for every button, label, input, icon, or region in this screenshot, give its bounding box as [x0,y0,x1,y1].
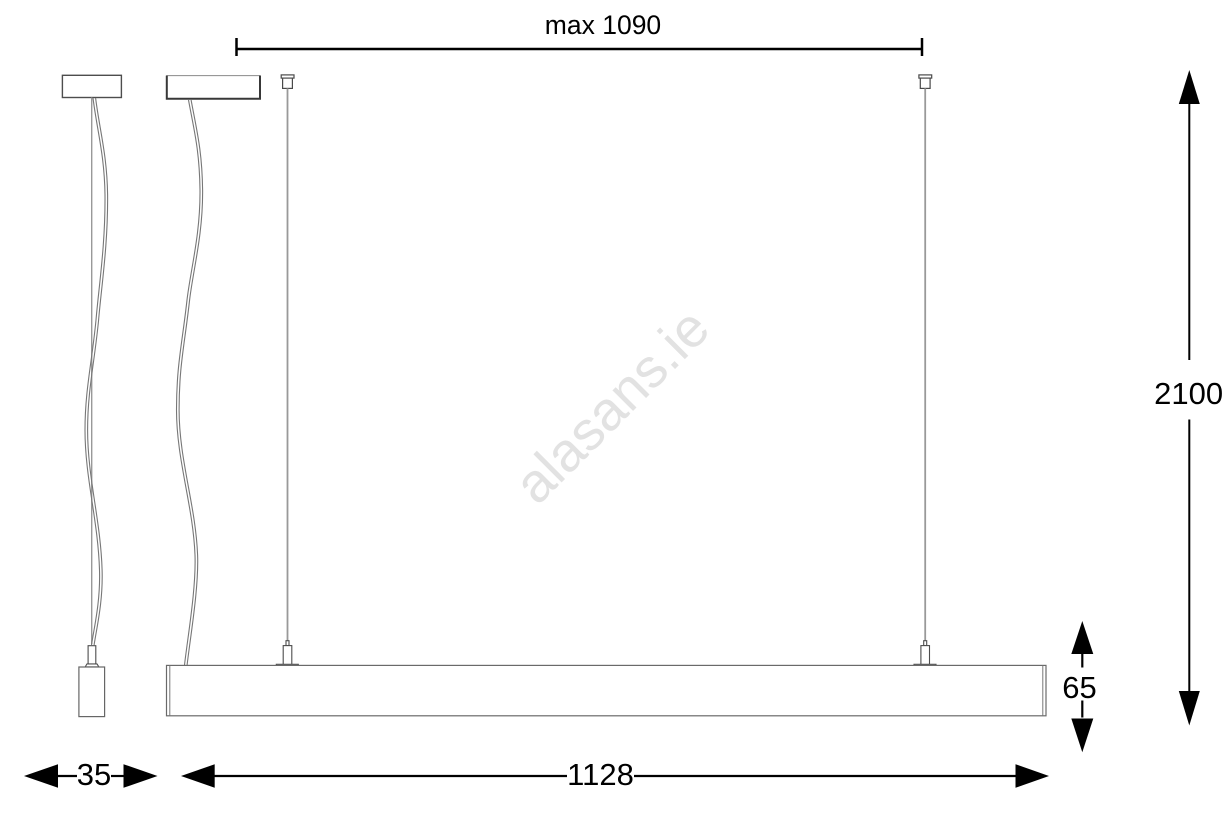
svg-text:35: 35 [77,757,111,792]
svg-text:2100: 2100 [1154,376,1223,411]
svg-text:1128: 1128 [567,757,634,792]
svg-text:max 1090: max 1090 [545,10,661,40]
svg-text:65: 65 [1062,670,1096,705]
